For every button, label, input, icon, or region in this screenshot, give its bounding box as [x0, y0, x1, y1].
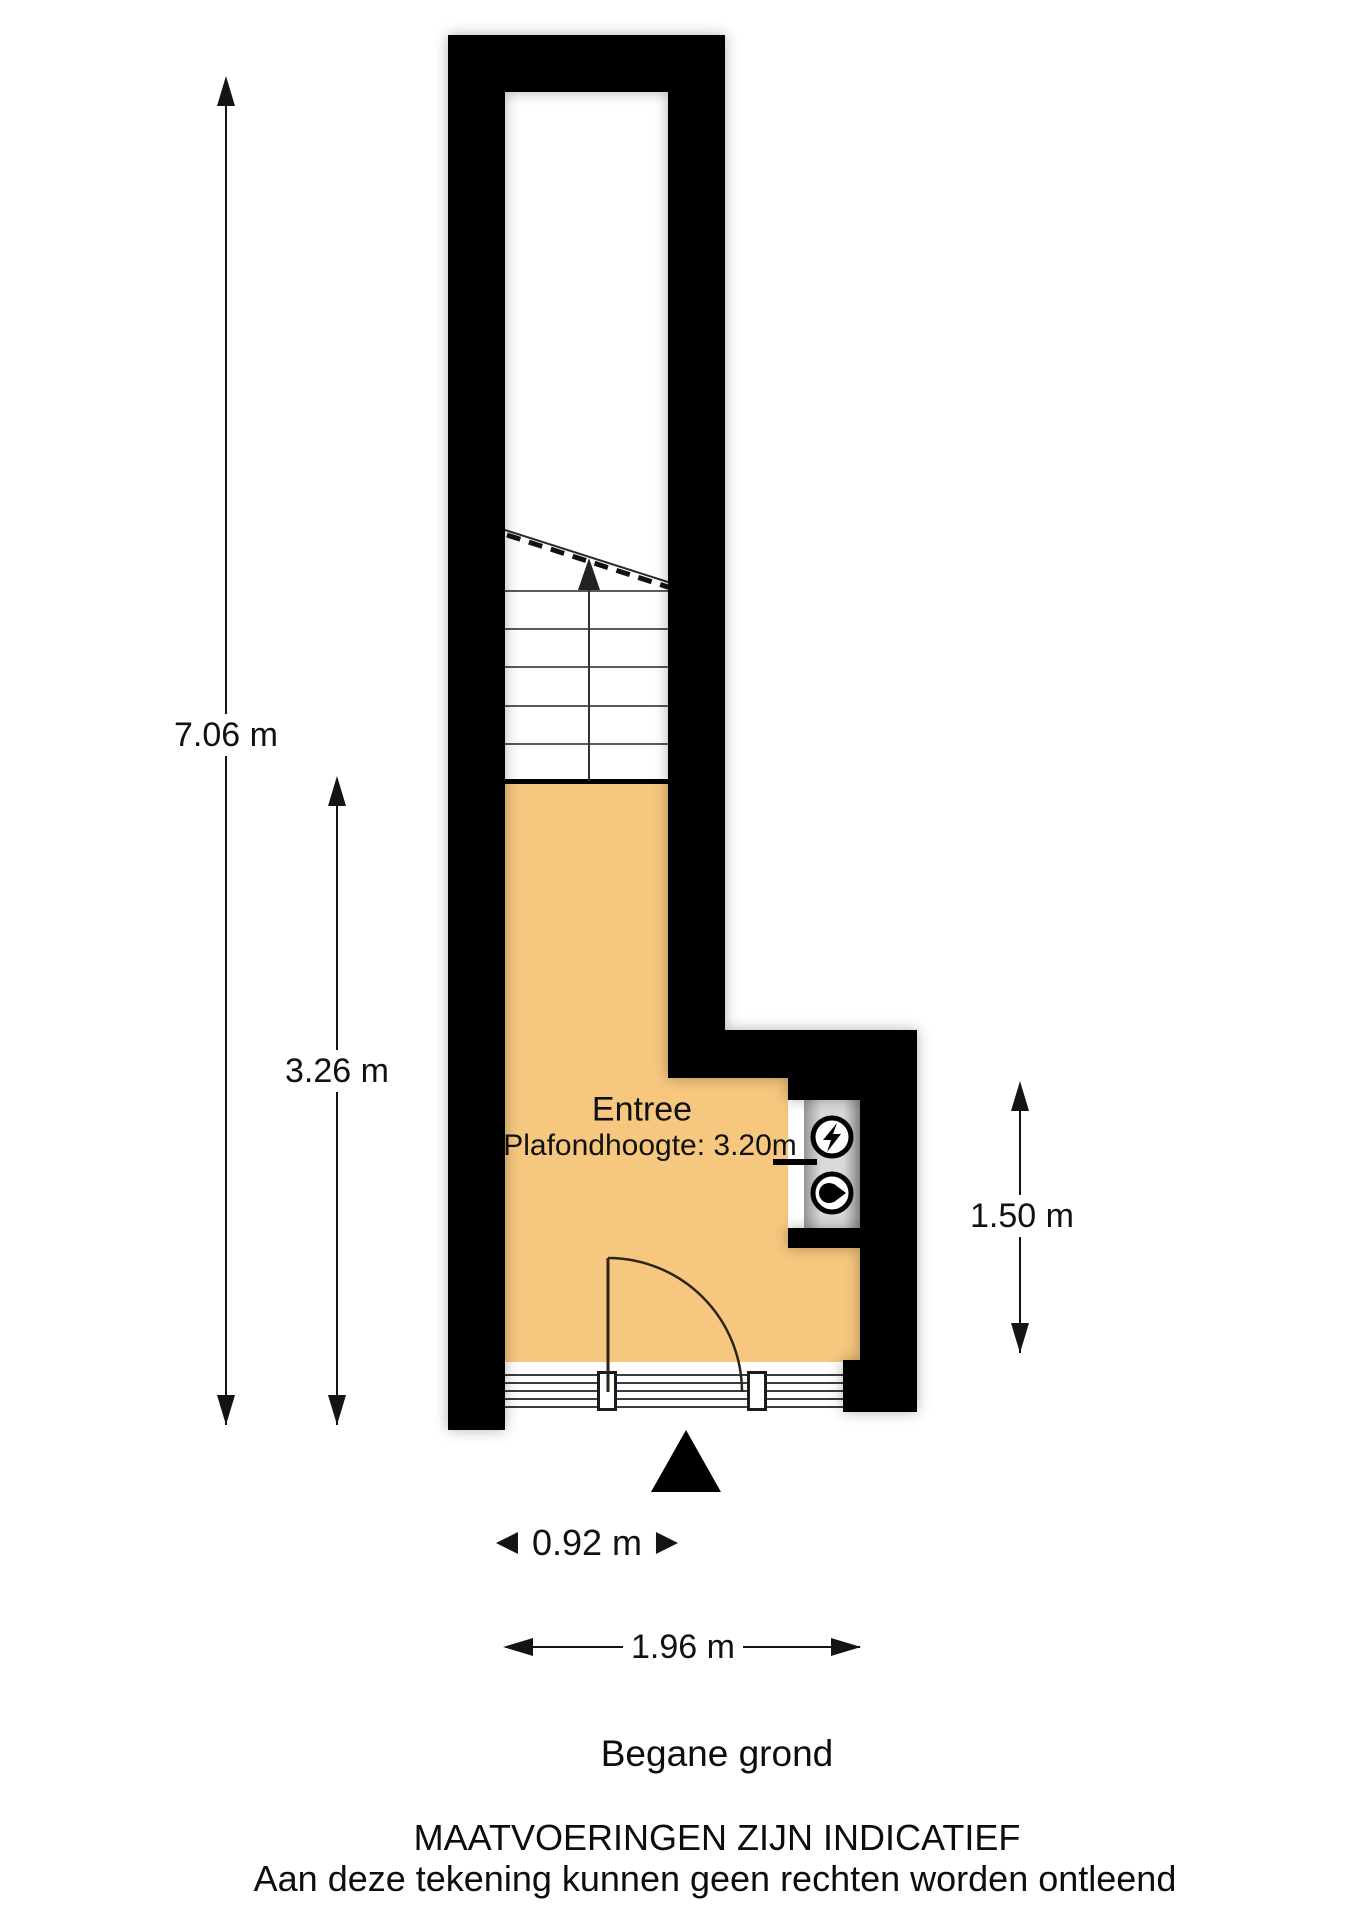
- disclaimer-line2: Aan deze tekening kunnen geen rechten wo…: [254, 1858, 1177, 1900]
- arrow-down-icon: [1011, 1323, 1029, 1353]
- water-meter-icon: [813, 1174, 851, 1212]
- disclaimer-line1: MAATVOERINGEN ZIJN INDICATIEF: [414, 1817, 1021, 1859]
- wall-left: [448, 35, 505, 1430]
- wall-top: [448, 35, 725, 92]
- floor-title: Begane grond: [601, 1733, 833, 1775]
- ceiling-height-label: Plafondhoogte: 3.20m: [503, 1129, 797, 1163]
- floor-plan-canvas: Entree Plafondhoogte: 3.20m 7.06 m 3.26 …: [0, 0, 1358, 1920]
- arrow-up-icon: [217, 76, 235, 106]
- room-label: Entree: [592, 1091, 692, 1130]
- dimension-door-width: 0.92 m: [496, 1525, 678, 1561]
- arrow-left-icon: [496, 1532, 518, 1554]
- stairs-up-arrow-icon: [578, 558, 600, 590]
- extension-right-wall: [860, 1030, 917, 1412]
- door-arc: [608, 1258, 742, 1392]
- arrow-down-icon: [217, 1395, 235, 1425]
- extension-top-wall: [725, 1030, 917, 1078]
- arrow-right-icon: [831, 1638, 861, 1656]
- arrow-left-icon: [503, 1638, 533, 1656]
- wall-right-narrow: [668, 92, 725, 1078]
- dimension-line-entree-height: [336, 780, 338, 1425]
- arrow-up-icon: [328, 776, 346, 806]
- dimension-label-porch-depth: 1.50 m: [962, 1195, 1082, 1237]
- electricity-meter-icon: [813, 1118, 851, 1156]
- entree-floor-narrow: [505, 783, 670, 1080]
- meter-icons: [804, 1100, 860, 1228]
- threshold-line: [505, 1406, 843, 1408]
- stairwell-void: [505, 92, 670, 535]
- entrance-arrow-icon: [651, 1430, 721, 1492]
- stair-direction-line: [588, 585, 590, 781]
- dimension-label-door-width: 0.92 m: [532, 1525, 642, 1561]
- facade-right-pier: [843, 1360, 917, 1412]
- dimension-label-total-width: 1.96 m: [623, 1626, 743, 1668]
- arrow-down-icon: [328, 1395, 346, 1425]
- entrance-door-swing: [560, 1252, 760, 1402]
- dimension-label-entree-height: 3.26 m: [277, 1050, 397, 1092]
- arrow-up-icon: [1011, 1081, 1029, 1111]
- arrow-right-icon: [656, 1532, 678, 1554]
- dimension-label-total-height: 7.06 m: [166, 714, 286, 756]
